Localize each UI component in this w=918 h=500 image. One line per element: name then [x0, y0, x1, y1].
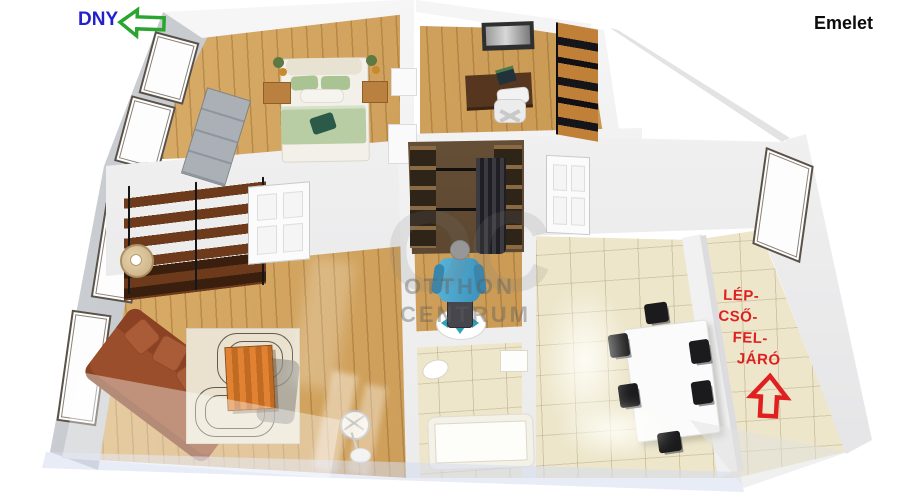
- staircase-note-line-2: CSŐ-: [714, 305, 805, 329]
- bookshelf-support-middle: [195, 182, 197, 290]
- floorplan-canvas: OC OTTHON CENTRUM DNY Emelet LÉP- CSŐ- F…: [0, 0, 918, 500]
- office-shelf-unit: [556, 22, 598, 141]
- bookshelf-support-left: [128, 186, 130, 294]
- staircase-up-arrow-icon: [745, 371, 793, 421]
- bathtub: [427, 413, 535, 471]
- wall-lamp-right-shade: [372, 66, 380, 74]
- bedroom-white-cabinet-1: [391, 68, 417, 96]
- dining-chair-1: [644, 301, 670, 324]
- bathroom-sink: [500, 350, 528, 372]
- watermark-name-line2: CENTRUM: [400, 304, 531, 326]
- light-streak-dining-2: [555, 400, 675, 460]
- staircase-note: LÉP- CSŐ- FEL- JÁRÓ: [713, 284, 806, 371]
- wall-picture-image: [486, 25, 531, 46]
- staircase-note-line-4: JÁRÓ: [713, 347, 804, 371]
- bed-white-pillow: [300, 89, 344, 103]
- wall-lamp-left: [273, 57, 284, 68]
- dining-chair-6: [690, 380, 713, 406]
- dining-chair-5: [688, 339, 711, 365]
- wall-lamp-left-shade: [279, 68, 287, 76]
- pendant-lamp-center: [130, 254, 142, 266]
- person-base-arrow-down: [455, 327, 465, 334]
- compass-label: DNY: [78, 10, 118, 29]
- nightstand-right: [362, 81, 388, 103]
- compass-left-arrow-icon: [115, 5, 168, 41]
- bed-headboard: [286, 57, 362, 75]
- living-room-door: [248, 181, 310, 264]
- watermark-name-line1: OTTHON: [404, 276, 515, 298]
- dining-room-door: [546, 155, 590, 235]
- nightstand-left: [263, 82, 291, 104]
- wall-lamp-right: [366, 55, 377, 66]
- floor-label: Emelet: [814, 14, 873, 32]
